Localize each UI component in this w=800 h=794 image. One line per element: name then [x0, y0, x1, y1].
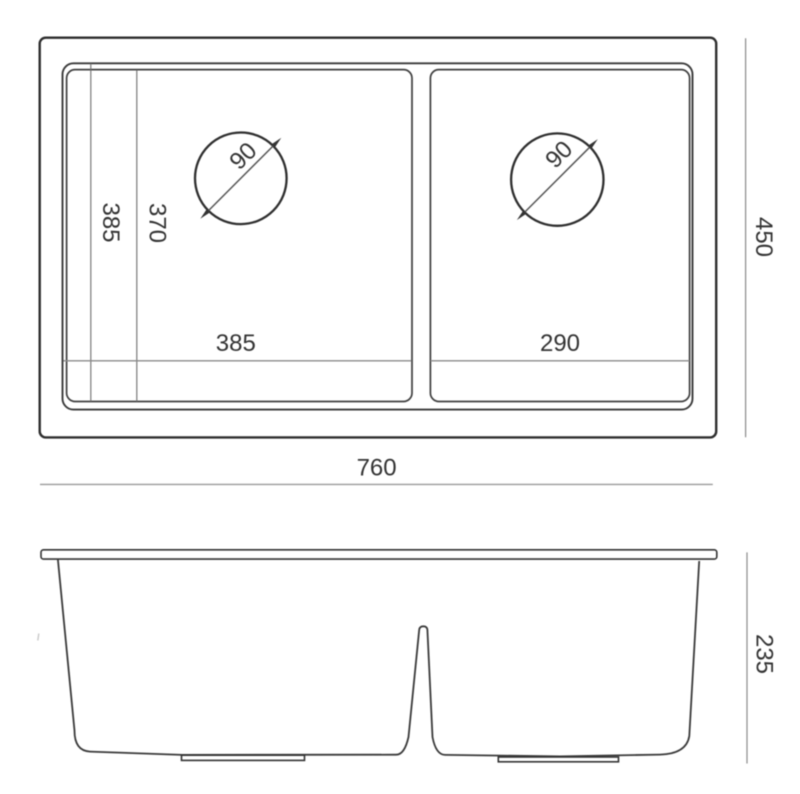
svg-text:370: 370 [144, 203, 171, 243]
svg-text:290: 290 [540, 330, 580, 357]
svg-text:235: 235 [751, 634, 778, 674]
svg-text:385: 385 [97, 202, 124, 242]
svg-text:385: 385 [216, 330, 256, 357]
svg-text:760: 760 [357, 454, 397, 481]
svg-text:450: 450 [750, 217, 777, 257]
